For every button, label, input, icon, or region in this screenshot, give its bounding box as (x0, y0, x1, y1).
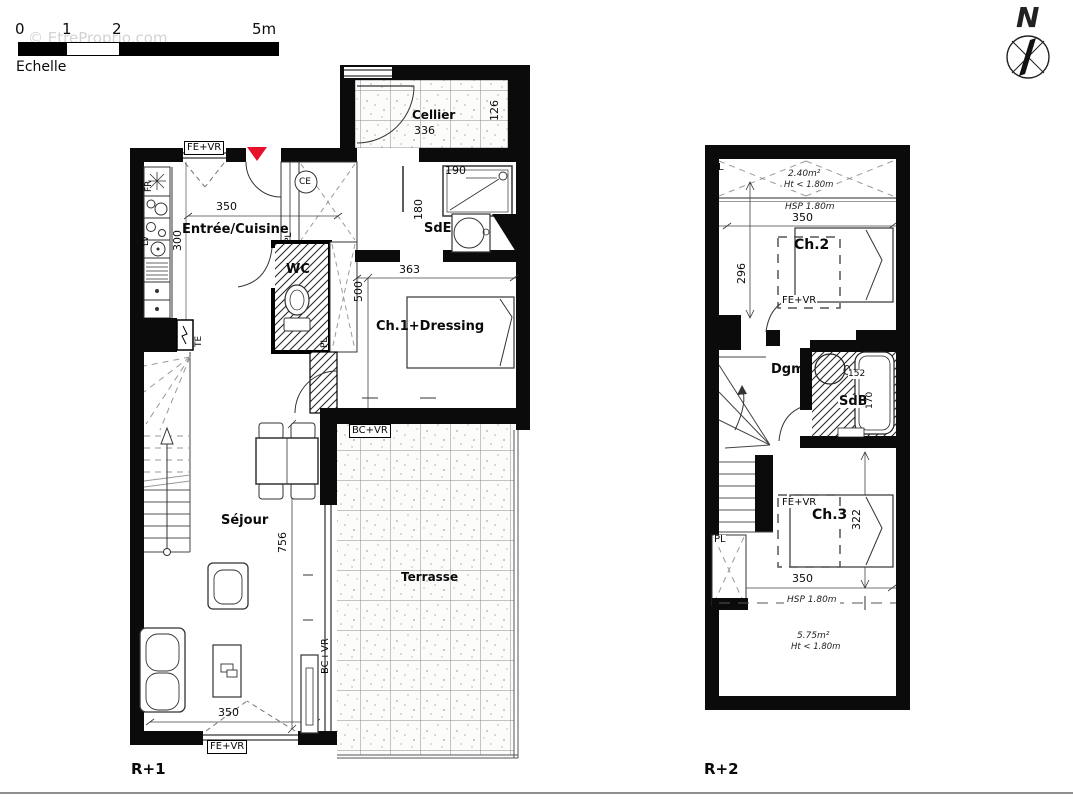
bay-tag-bcvr-sejour: BC+VR (321, 638, 331, 674)
dim-shower-190: 190 (445, 165, 466, 176)
scale-label: Echelle (16, 60, 66, 74)
room-label-ch2: Ch.2 (794, 238, 829, 252)
dim-ch3-350: 350 (792, 573, 813, 584)
floorplan-page: © EtreProprio.com 0 1 2 5m Echelle N (0, 0, 1073, 800)
note-attic-bottom-height: Ht < 1.80m (791, 643, 840, 652)
dim-ch3-322: 322 (851, 509, 862, 530)
dim-sejour-350: 350 (218, 707, 239, 718)
dim-sdb-152: 152 (848, 370, 865, 379)
room-label-wc: WC (286, 263, 310, 276)
bay-tag-bcvr-ch1: BC+VR (349, 424, 391, 438)
dining-set (256, 423, 318, 499)
dim-sde-180: 180 (413, 199, 424, 220)
room-label-dgmt: Dgmt (771, 363, 811, 376)
dim-ch1-500: 500 (353, 281, 364, 302)
compass (1007, 36, 1049, 78)
roof-window-tag-ch3: FE+VR (781, 497, 817, 508)
tag-te: TE (195, 336, 204, 347)
room-label-cellier: Cellier (412, 109, 455, 121)
closet-tag-pl-bottom: PL (714, 535, 726, 545)
note-attic-top-area: 2.40m² (786, 170, 822, 179)
floor-label-r1: R+1 (131, 762, 166, 777)
roof-window-tag-ch2: FE+VR (781, 295, 817, 306)
dim-cellier-126: 126 (489, 100, 500, 121)
plan-r2 (705, 145, 910, 710)
lounge-furniture (140, 563, 248, 712)
room-label-sdb: SdB (838, 395, 869, 408)
dim-ch1-363: 363 (399, 264, 420, 275)
dim-entree-350: 350 (216, 201, 237, 212)
closet-tag-pl-top: PL (712, 163, 724, 173)
closet-tag-pl-hall: PL (285, 233, 294, 243)
room-label-sejour: Séjour (221, 514, 268, 527)
scale-segment (119, 43, 278, 55)
dim-sejour-756: 756 (277, 532, 288, 553)
compass-north-label: N (1016, 4, 1039, 32)
appliance-tag-fr: FR (145, 181, 154, 192)
scale-tick-2: 2 (112, 20, 122, 38)
room-label-entree-cuisine: Entrée/Cuisine (182, 223, 289, 236)
floorplan-drawing (0, 0, 1073, 800)
room-label-terrasse: Terrasse (401, 571, 458, 583)
room-label-sde: SdE (424, 222, 452, 235)
appliance-tag-lv: LV (142, 236, 151, 246)
dim-kitchen-300: 300 (172, 230, 183, 251)
scale-tick-0: 0 (15, 20, 25, 38)
scale-bar (18, 42, 279, 56)
closet-tag-pl-ch1: PL (321, 338, 330, 348)
stairs-r1 (144, 352, 190, 556)
dim-ch2-296: 296 (736, 263, 747, 284)
sde-room (355, 166, 530, 262)
wc-room (238, 242, 330, 352)
window-tag-fevr-top: FE+VR (184, 141, 224, 155)
tag-ce: CE (299, 178, 311, 187)
note-attic-bottom-area: 5.75m² (797, 632, 829, 641)
scale-tick-1: 1 (62, 20, 72, 38)
room-label-ch1: Ch.1+Dressing (376, 320, 484, 333)
dim-cellier-336: 336 (414, 125, 435, 136)
dim-sdb-170: 170 (866, 392, 875, 409)
stairs-r2 (719, 357, 773, 532)
window-tag-fevr-bottom: FE+VR (207, 740, 247, 754)
room-label-ch3: Ch.3 (811, 508, 848, 522)
scale-segment (67, 43, 119, 55)
note-hsp-bottom: HSP 1.80m (784, 596, 840, 605)
scale-segment (19, 43, 67, 55)
scale-tick-5m: 5m (252, 20, 276, 38)
floor-label-r2: R+2 (704, 762, 739, 777)
dim-ch2-350: 350 (792, 212, 813, 223)
note-attic-top-height: Ht < 1.80m (782, 181, 835, 190)
